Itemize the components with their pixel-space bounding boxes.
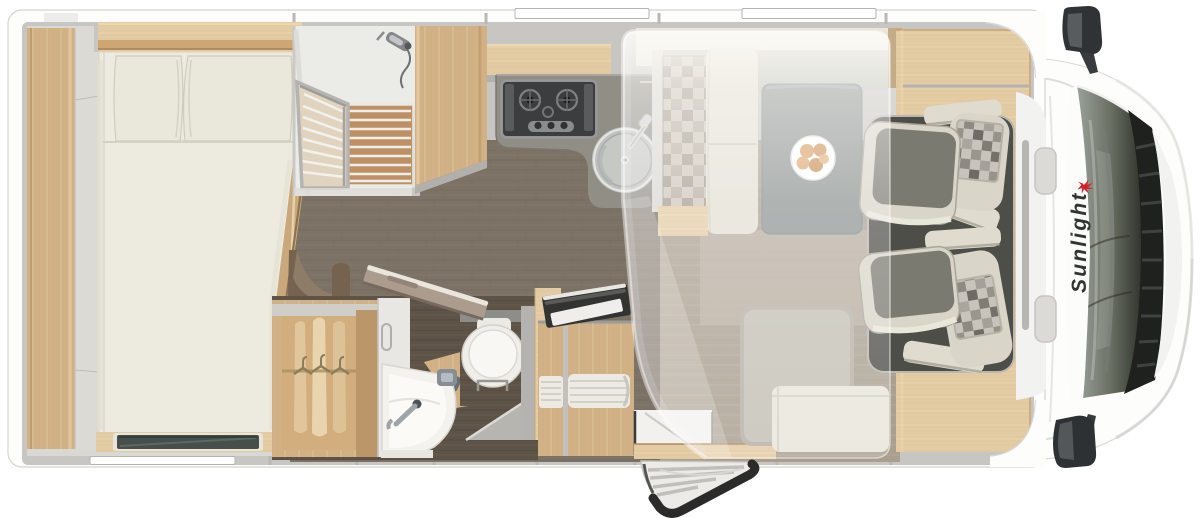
svg-text:Sunlight: Sunlight	[1068, 191, 1091, 293]
